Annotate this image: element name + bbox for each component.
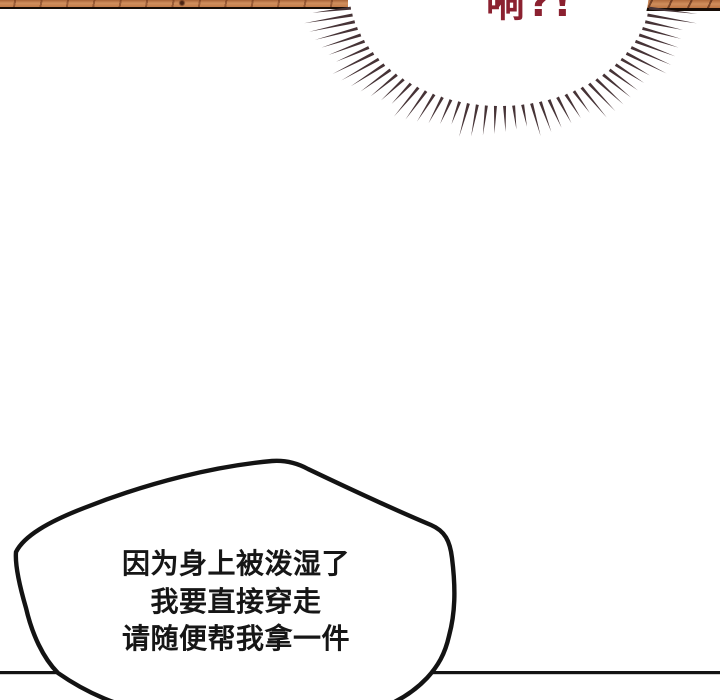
burst-spike [341,58,379,81]
burst-spike [332,52,374,74]
speech-line-3: 请随便帮我拿一件 [31,620,441,658]
burst-spike [595,78,623,104]
burst-spike [392,83,412,104]
burst-spike [649,7,697,14]
burst-spike [645,20,683,30]
speech-line-1: 因为身上被泼湿了 [31,545,441,583]
burst-spike [621,58,650,76]
burst-spike [405,90,427,119]
burst-spike [647,14,697,24]
burst-spike [459,103,470,137]
shout-text: 嗬?! [486,0,573,23]
burst-spike [615,63,644,83]
burst-spike [609,69,638,91]
burst-spike [635,40,675,57]
burst-spike [381,78,405,100]
burst-spike [417,94,435,122]
burst-spike [371,74,398,97]
burst-spike [539,101,551,132]
burst-spike [588,83,615,111]
comic-panel: 嗬?! 因为身上被泼湿了 我要直接穿走 请随便帮我拿一件 [0,0,720,700]
burst-spike [440,99,452,124]
speech-bubble-text: 因为身上被泼湿了 我要直接穿走 请随便帮我拿一件 [31,545,441,658]
burst-spike [503,106,506,132]
burst-spike [602,74,631,98]
burst-spike [304,14,353,24]
burst-spike [451,101,461,124]
burst-spike [626,52,667,73]
burst-spike [336,46,369,62]
burst-spike [394,87,420,117]
burst-spike [512,105,516,129]
burst-spike [581,87,607,118]
burst-spike [361,69,392,92]
burst-spike [521,104,527,126]
burst-spike [530,103,540,136]
burst-spike [631,46,672,65]
burst-spike [471,104,479,136]
speech-line-2: 我要直接穿走 [31,583,441,621]
burst-spike [351,63,385,86]
burst-spike [328,40,365,55]
burst-spike [494,106,497,134]
burst-spike [483,105,488,135]
burst-spike [313,7,351,13]
